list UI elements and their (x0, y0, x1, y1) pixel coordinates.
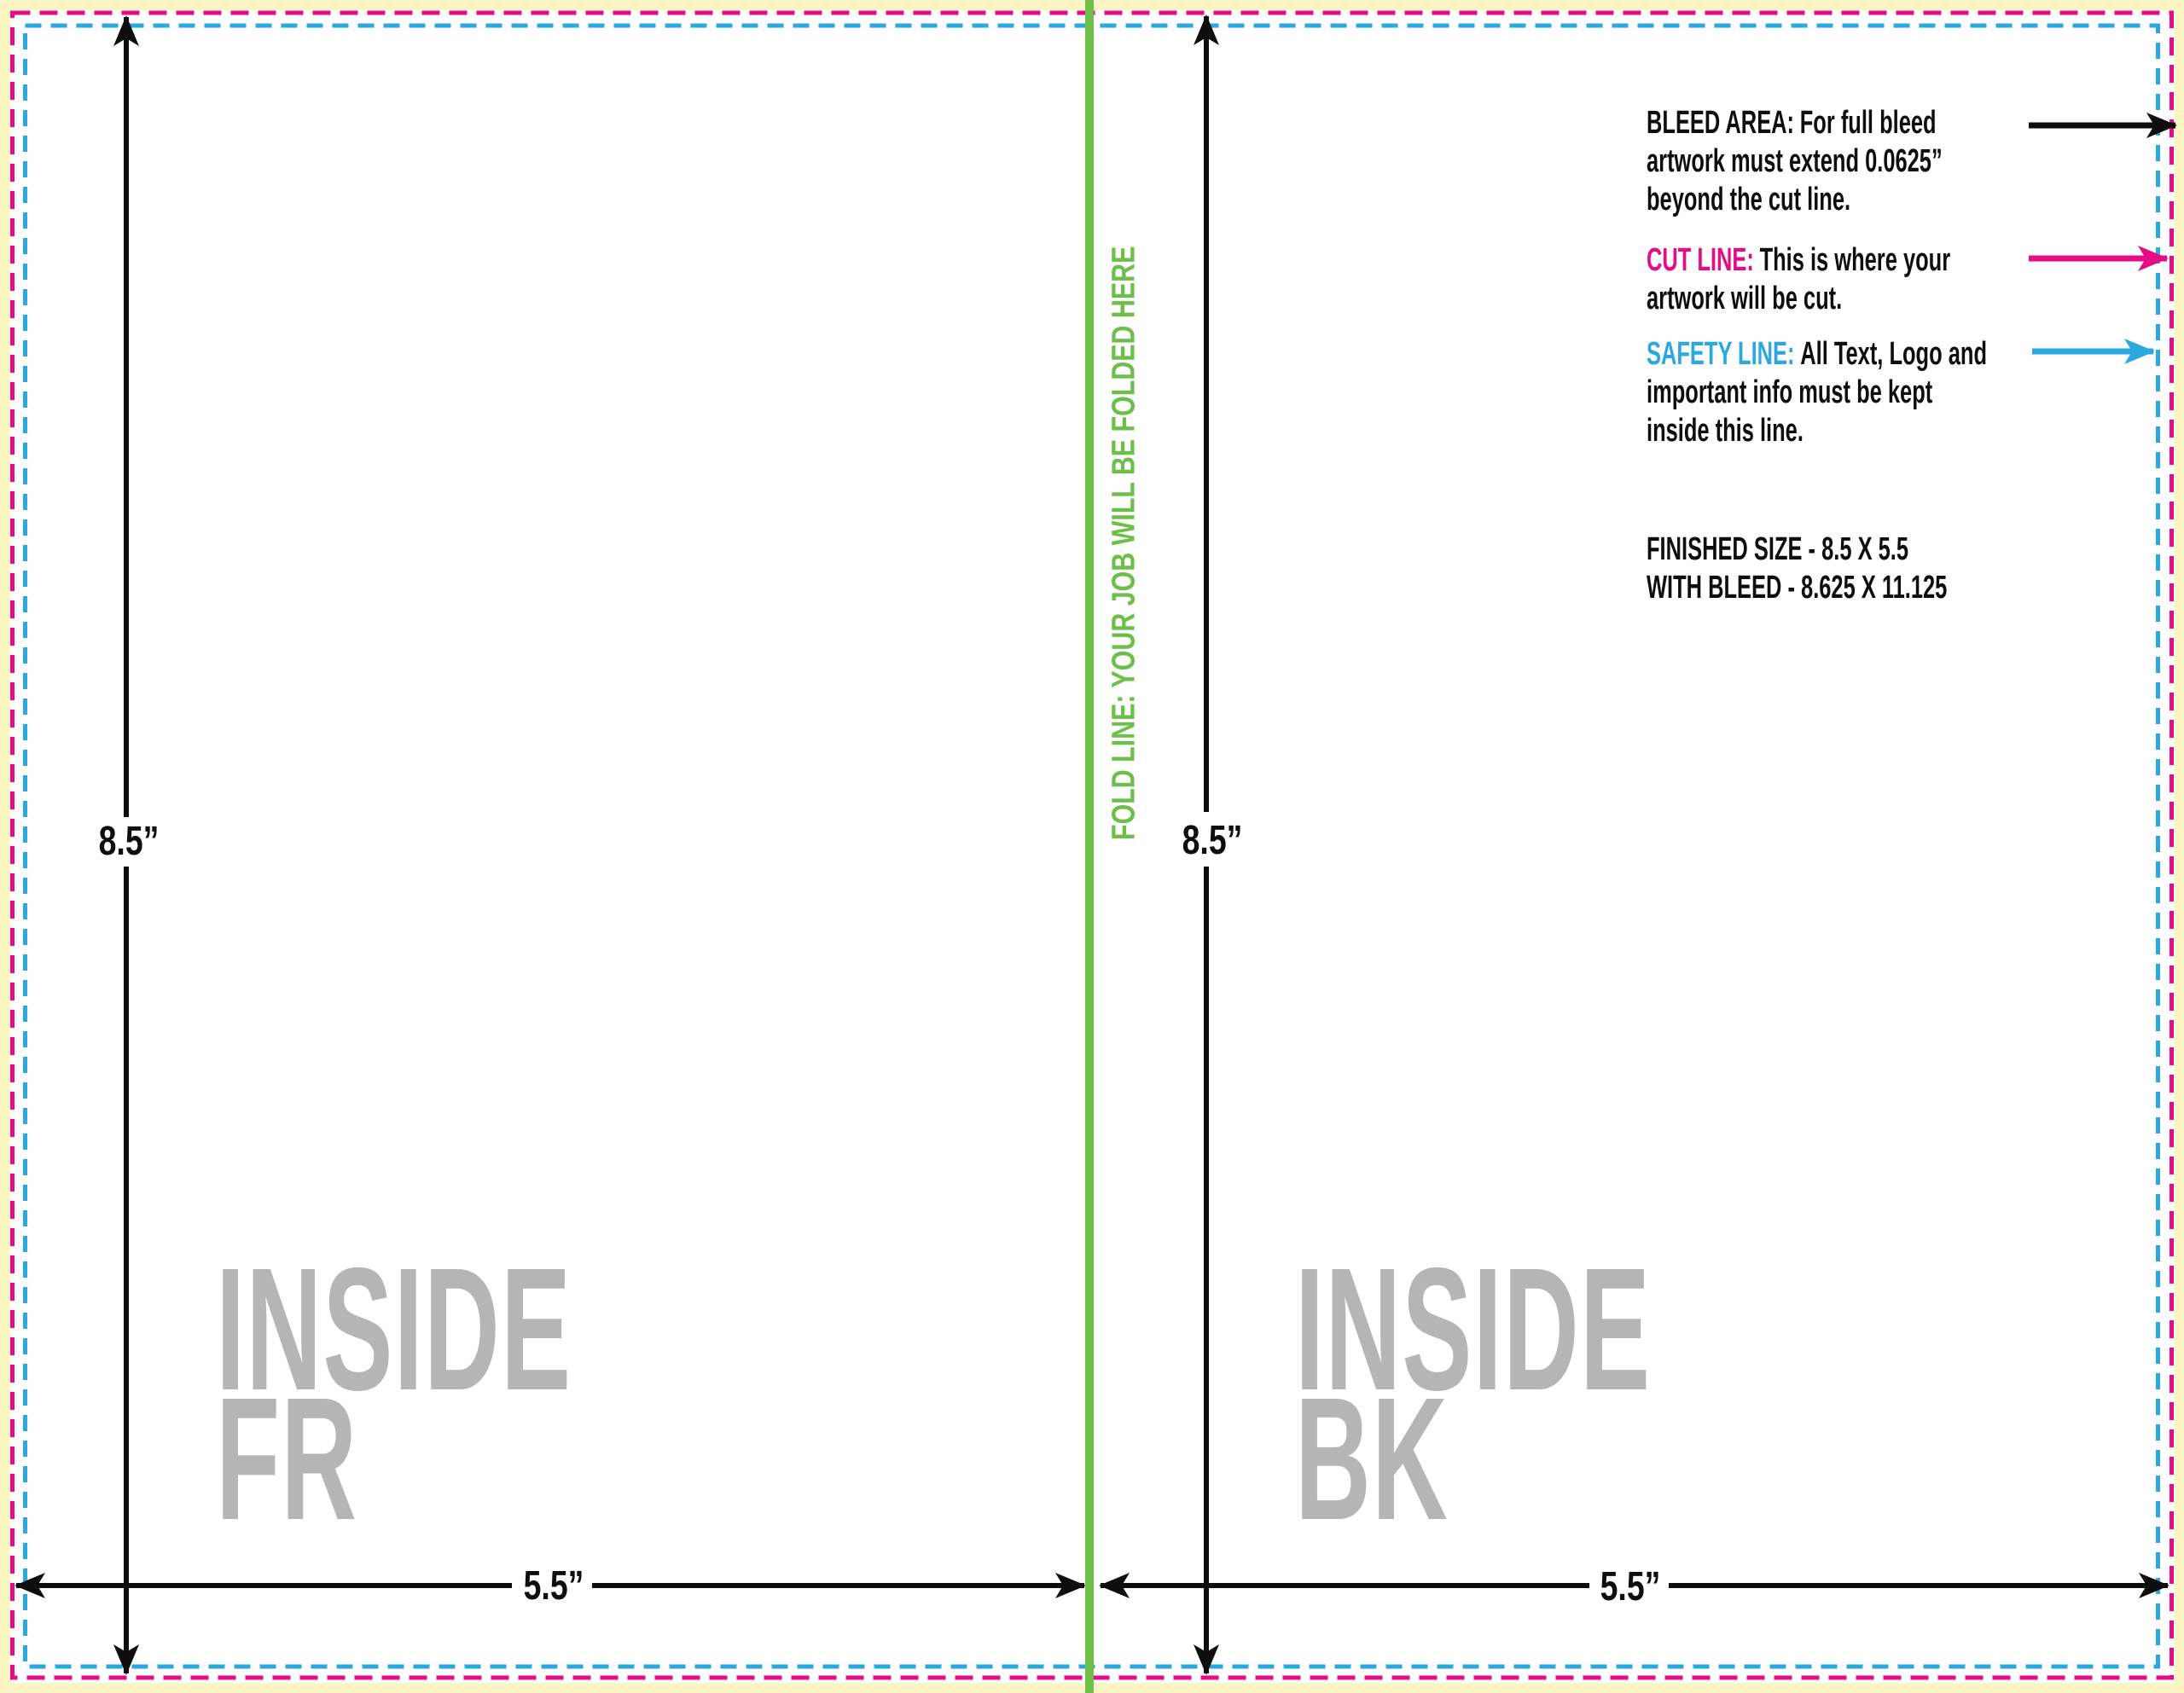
finished-size-text: FINISHED SIZE - 8.5 X 5.5 (1647, 531, 1947, 569)
safety-line-text-2: important info must be kept (1647, 374, 1987, 412)
cut-line-legend: CUT LINE:This is where your artwork will… (1647, 241, 1950, 318)
bleed-area-legend: BLEED AREA:For full bleed artwork must e… (1647, 104, 1943, 219)
with-bleed-size-text: WITH BLEED - 8.625 X 11.125 (1647, 569, 1947, 607)
cut-line-label: CUT LINE: (1647, 242, 1754, 278)
cut-line-legend-line1: CUT LINE:This is where your (1647, 241, 1950, 280)
fold-line-rule (1085, 0, 1094, 1693)
right-panel-width-label: 5.5” (1581, 1567, 1681, 1608)
bleed-area-label: BLEED AREA: (1647, 105, 1794, 141)
size-note: FINISHED SIZE - 8.5 X 5.5 WITH BLEED - 8… (1647, 531, 1947, 607)
cut-line-text-2: artwork will be cut. (1647, 280, 1950, 318)
safety-line-label: SAFETY LINE: (1647, 336, 1795, 372)
safety-line-legend-line1: SAFETY LINE:All Text, Logo and (1647, 335, 1987, 374)
right-panel-height-label: 8.5” (1163, 820, 1263, 861)
inside-back-watermark: INSIDE BK (1295, 1265, 1651, 1524)
bleed-area-text-2: artwork must extend 0.0625” (1647, 142, 1943, 181)
safety-line-text-3: inside this line. (1647, 412, 1987, 450)
safety-line-text-1: All Text, Logo and (1800, 336, 1987, 372)
bleed-area-text-1: For full bleed (1800, 105, 1937, 141)
bleed-area-legend-line1: BLEED AREA:For full bleed (1647, 104, 1943, 142)
left-panel-height-label: 8.5” (79, 821, 179, 862)
bleed-area-text-3: beyond the cut line. (1647, 181, 1943, 219)
inside-front-watermark: INSIDE FR (216, 1265, 572, 1524)
left-panel-width-label: 5.5” (504, 1566, 604, 1607)
safety-line-legend: SAFETY LINE:All Text, Logo and important… (1647, 335, 1987, 450)
halffold-template-page: BLEED AREA:For full bleed artwork must e… (0, 0, 2184, 1693)
cut-line-text-1: This is where your (1760, 242, 1951, 278)
